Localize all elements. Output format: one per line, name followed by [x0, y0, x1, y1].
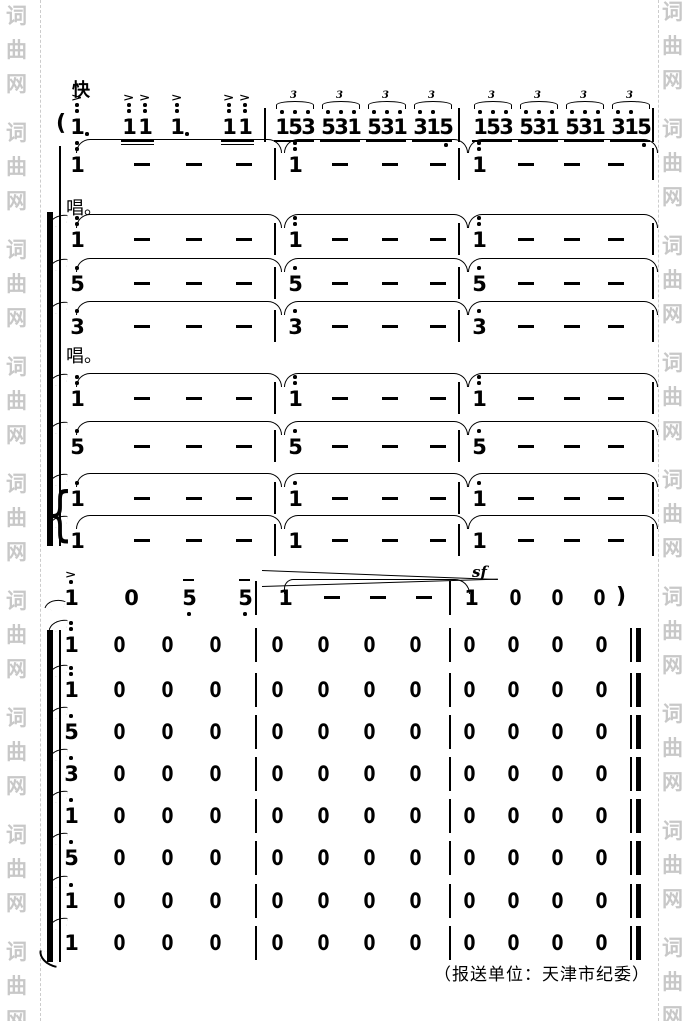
duration-dash: [382, 497, 398, 500]
bar-line: [255, 673, 257, 707]
rest-zero: 0: [113, 634, 125, 656]
duration-dash: [332, 238, 348, 241]
rest-zero: 0: [209, 763, 221, 785]
watermark-char: 网: [6, 659, 27, 680]
duration-dash: [608, 497, 624, 500]
watermark-char: 曲: [662, 621, 683, 642]
final-barline-thick: [636, 757, 641, 791]
rest-zero: 0: [409, 932, 421, 954]
triplet-arc: [566, 101, 604, 109]
duration-dash: [564, 163, 580, 166]
note-digit: 1: [472, 388, 487, 410]
watermark-char: 曲: [662, 504, 683, 525]
watermark-divider-right: [658, 0, 659, 1021]
duration-dash: [332, 282, 348, 285]
note-digit: 5: [288, 436, 303, 458]
bar-line: [449, 673, 451, 707]
watermark-char: 词: [6, 6, 27, 27]
note-digit: 5: [288, 273, 303, 295]
duration-dash: [564, 445, 580, 448]
bar-line: [255, 884, 257, 918]
measure-tie-arc: [76, 258, 282, 272]
note-digit: 1: [288, 530, 303, 552]
bar-line: [449, 715, 451, 749]
duration-dash: [518, 325, 534, 328]
rest-zero: 0: [113, 721, 125, 743]
rest-zero: 0: [161, 634, 173, 656]
rest-zero: 0: [271, 890, 283, 912]
duration-dash: [186, 238, 202, 241]
rest-zero: 0: [209, 805, 221, 827]
duration-dash: [608, 163, 624, 166]
octave-dot: [69, 840, 73, 844]
measure-tie-arc: [76, 473, 282, 487]
score-page: 词曲网词曲网词曲网词曲网词曲网词曲网词曲网词曲网词曲网 词曲网词曲网词曲网词曲网…: [0, 0, 690, 1021]
bar-line: [255, 628, 257, 662]
note-digit: 3: [70, 316, 85, 338]
octave-dot: [385, 110, 389, 114]
rest-zero: 0: [595, 634, 607, 656]
duration-dash: [134, 497, 150, 500]
rest-zero: 0: [113, 847, 125, 869]
rest-zero: 0: [409, 763, 421, 785]
accent-mark: >: [139, 93, 151, 102]
tenuto-mark: [239, 579, 250, 581]
triplet-arc: [322, 101, 360, 109]
rest-zero: 0: [271, 634, 283, 656]
octave-dot: [243, 109, 247, 113]
watermark-char: 网: [6, 191, 27, 212]
watermark-char: 词: [6, 123, 27, 144]
triplet-number: 3: [580, 91, 587, 101]
rest-zero: 0: [113, 679, 125, 701]
rest-zero: 0: [463, 805, 475, 827]
note-digit: 5: [637, 116, 652, 138]
watermark-char: 词: [6, 240, 27, 261]
measure-tie-arc: [76, 421, 282, 435]
note-digit: 3: [64, 763, 79, 785]
duration-dash: [382, 238, 398, 241]
note-digit: 1: [288, 154, 303, 176]
augmentation-dot: [185, 132, 189, 136]
duration-dash: [382, 282, 398, 285]
duration-dash: [430, 282, 446, 285]
watermark-char: 词: [662, 353, 683, 374]
duration-dash: [518, 163, 534, 166]
note-digit: 1: [70, 154, 85, 176]
accent-mark: >: [71, 93, 83, 102]
rest-zero: 0: [409, 847, 421, 869]
duration-dash: [236, 163, 252, 166]
duration-dash: [382, 163, 398, 166]
duration-dash: [608, 238, 624, 241]
octave-dot: [570, 110, 574, 114]
rest-zero: 0: [593, 587, 605, 609]
measure-tie-arc: [76, 515, 282, 529]
rest-zero: 0: [317, 932, 329, 954]
tie-arc: [44, 596, 65, 614]
octave-dot: [293, 110, 297, 114]
octave-dot: [69, 883, 73, 887]
rest-zero: 0: [551, 721, 563, 743]
octave-dot: [524, 110, 528, 114]
rest-zero: 0: [463, 634, 475, 656]
duration-dash: [186, 325, 202, 328]
octave-dot: [69, 798, 73, 802]
watermark-char: 网: [662, 421, 683, 442]
measure-tie-arc: [468, 139, 658, 153]
watermark-char: 曲: [662, 270, 683, 291]
duration-dash: [186, 397, 202, 400]
watermark-char: 网: [662, 1006, 683, 1021]
bar-line: [264, 108, 266, 142]
rest-zero: 0: [595, 890, 607, 912]
rest-zero: 0: [363, 721, 375, 743]
watermark-char: 词: [6, 474, 27, 495]
measure-tie-arc: [468, 373, 658, 387]
measure-tie-arc: [284, 258, 468, 272]
duration-dash: [564, 325, 580, 328]
rest-zero: 0: [271, 847, 283, 869]
final-barline-thick: [636, 715, 641, 749]
duration-dash: [134, 238, 150, 241]
duration-dash: [324, 596, 340, 599]
measure-tie-arc: [468, 301, 658, 315]
watermark-char: 词: [662, 236, 683, 257]
triplet-number: 3: [336, 91, 343, 101]
final-barline-thick: [636, 799, 641, 833]
measure-tie-arc: [76, 301, 282, 315]
rest-zero: 0: [595, 721, 607, 743]
rest-zero: 0: [507, 932, 519, 954]
watermark-char: 曲: [662, 36, 683, 57]
rest-zero: 0: [551, 679, 563, 701]
octave-dot: [187, 612, 191, 616]
octave-dot: [326, 110, 330, 114]
note-digit: 1: [238, 116, 253, 138]
duration-dash: [370, 596, 386, 599]
rest-zero: 0: [595, 679, 607, 701]
rest-zero: 0: [209, 890, 221, 912]
duration-dash: [430, 238, 446, 241]
rest-zero: 0: [363, 634, 375, 656]
note-digit: 1: [591, 116, 606, 138]
rest-zero: 0: [551, 587, 563, 609]
rest-zero: 0: [317, 721, 329, 743]
watermark-char: 词: [662, 821, 683, 842]
watermark-char: 网: [6, 1010, 27, 1021]
note-digit: 1: [347, 116, 362, 138]
rest-zero: 0: [209, 847, 221, 869]
measure-tie-arc: [284, 421, 468, 435]
octave-dot: [616, 110, 620, 114]
watermark-char: 网: [6, 425, 27, 446]
final-barline-thick: [636, 884, 641, 918]
duration-dash: [518, 238, 534, 241]
note-digit: 1: [170, 116, 185, 138]
note-digit: 1: [472, 488, 487, 510]
note-digit: 5: [472, 436, 487, 458]
duration-dash: [518, 497, 534, 500]
octave-dot: [478, 110, 482, 114]
note-digit: 1: [64, 890, 79, 912]
duration-dash: [416, 596, 432, 599]
duration-dash: [608, 445, 624, 448]
system-barline-thin: [59, 630, 61, 962]
rest-zero: 0: [209, 721, 221, 743]
rest-zero: 0: [113, 763, 125, 785]
watermark-char: 网: [662, 70, 683, 91]
note-digit: 1: [64, 932, 79, 954]
accent-mark: >: [223, 93, 235, 102]
watermark-char: 网: [662, 889, 683, 910]
note-digit: 1: [222, 116, 237, 138]
final-barline-thin: [630, 757, 632, 791]
duration-dash: [332, 325, 348, 328]
note-digit: 5: [64, 847, 79, 869]
duration-dash: [134, 397, 150, 400]
rest-zero: 0: [595, 932, 607, 954]
bar-line: [255, 841, 257, 875]
octave-dot: [537, 110, 541, 114]
watermark-char: 曲: [6, 625, 27, 646]
rest-zero: 0: [317, 634, 329, 656]
bar-line: [255, 926, 257, 960]
triplet-number: 3: [534, 91, 541, 101]
rest-zero: 0: [507, 679, 519, 701]
rest-zero: 0: [551, 932, 563, 954]
watermark-char: 曲: [662, 387, 683, 408]
rest-zero: 0: [113, 932, 125, 954]
note-digit: 1: [64, 587, 79, 609]
augmentation-dot: [85, 132, 89, 136]
watermark-char: 曲: [6, 508, 27, 529]
note-digit: 5: [238, 587, 253, 609]
rest-zero: 0: [463, 679, 475, 701]
rest-zero: 0: [209, 932, 221, 954]
note-digit: 5: [472, 273, 487, 295]
note-digit: 3: [288, 316, 303, 338]
octave-dot: [69, 627, 73, 631]
watermark-char: 网: [6, 542, 27, 563]
note-digit: 1: [70, 229, 85, 251]
watermark-char: 网: [6, 308, 27, 329]
rest-zero: 0: [507, 763, 519, 785]
rest-zero: 0: [363, 679, 375, 701]
octave-dot: [491, 110, 495, 114]
duration-dash: [186, 163, 202, 166]
octave-dot: [175, 109, 179, 113]
octave-dot: [306, 110, 310, 114]
rest-zero: 0: [209, 634, 221, 656]
octave-dot: [352, 110, 356, 114]
duration-dash: [332, 497, 348, 500]
duration-dash: [332, 397, 348, 400]
bar-line: [458, 108, 460, 142]
rest-zero: 0: [551, 634, 563, 656]
measure-tie-arc: [284, 515, 468, 529]
octave-dot: [69, 621, 73, 625]
grand-staff-brace: {: [46, 485, 73, 546]
note-digit: 1: [472, 229, 487, 251]
watermark-char: 曲: [662, 738, 683, 759]
measure-tie-arc: [76, 373, 282, 387]
final-barline-thin: [630, 884, 632, 918]
note-digit: 1: [70, 116, 85, 138]
opening-paren: (: [56, 112, 66, 136]
note-digit: 5: [64, 721, 79, 743]
bar-line: [255, 799, 257, 833]
watermark-char: 词: [662, 119, 683, 140]
rest-zero: 0: [463, 932, 475, 954]
watermark-char: 网: [662, 772, 683, 793]
duration-dash: [186, 445, 202, 448]
rest-zero: 0: [161, 763, 173, 785]
watermark-char: 网: [662, 187, 683, 208]
watermark-char: 网: [662, 538, 683, 559]
octave-dot: [69, 756, 73, 760]
duration-dash: [564, 238, 580, 241]
duration-dash: [186, 497, 202, 500]
rest-zero: 0: [161, 679, 173, 701]
rest-zero: 0: [507, 721, 519, 743]
duration-dash: [430, 497, 446, 500]
tenuto-mark: [183, 579, 194, 581]
watermark-char: 网: [6, 893, 27, 914]
triplet-arc: [368, 101, 406, 109]
octave-dot: [398, 110, 402, 114]
duration-dash: [564, 397, 580, 400]
note-digit: 1: [472, 154, 487, 176]
measure-tie-arc: [284, 214, 468, 228]
octave-dot: [339, 110, 343, 114]
duration-dash: [430, 325, 446, 328]
duration-dash: [382, 445, 398, 448]
rest-zero: 0: [317, 847, 329, 869]
triplet-arc: [520, 101, 558, 109]
watermark-char: 曲: [6, 40, 27, 61]
duration-dash: [518, 282, 534, 285]
note-digit: 5: [70, 436, 85, 458]
duration-dash: [518, 397, 534, 400]
final-barline-thin: [630, 799, 632, 833]
duration-dash: [564, 497, 580, 500]
watermark-char: 词: [6, 825, 27, 846]
watermark-char: 词: [6, 708, 27, 729]
note-digit: 1: [64, 805, 79, 827]
rest-zero: 0: [317, 890, 329, 912]
final-barline-thin: [630, 673, 632, 707]
duration-dash: [564, 282, 580, 285]
note-digit: 5: [439, 116, 454, 138]
rest-zero: 0: [363, 805, 375, 827]
watermark-char: 网: [662, 655, 683, 676]
measure-tie-arc: [468, 473, 658, 487]
octave-dot: [127, 109, 131, 113]
rest-zero: 0: [507, 634, 519, 656]
duration-dash: [236, 282, 252, 285]
final-barline-thick: [636, 841, 641, 875]
watermark-char: 网: [6, 776, 27, 797]
measure-tie-arc: [468, 258, 658, 272]
rest-zero: 0: [463, 763, 475, 785]
rest-zero: 0: [161, 932, 173, 954]
rest-zero: 0: [113, 805, 125, 827]
final-barline-thick: [636, 926, 641, 960]
octave-dot: [243, 612, 247, 616]
watermark-char: 曲: [6, 157, 27, 178]
duration-dash: [332, 445, 348, 448]
triplet-number: 3: [488, 91, 495, 101]
note-digit: 5: [182, 587, 197, 609]
duration-dash: [518, 445, 534, 448]
rest-zero: 0: [409, 890, 421, 912]
rest-zero: 0: [409, 805, 421, 827]
rest-zero: 0: [595, 847, 607, 869]
rest-zero: 0: [463, 847, 475, 869]
closing-paren: ): [616, 585, 626, 609]
octave-dot: [69, 672, 73, 676]
watermark-char: 词: [662, 704, 683, 725]
triplet-number: 3: [626, 91, 633, 101]
system-barline-thick: [47, 630, 53, 962]
watermark-char: 曲: [662, 972, 683, 993]
note-digit: 1: [138, 116, 153, 138]
watermark-char: 曲: [6, 859, 27, 880]
note-digit: 1: [288, 229, 303, 251]
accent-mark: >: [123, 93, 135, 102]
note-digit: 3: [499, 116, 514, 138]
rest-zero: 0: [551, 890, 563, 912]
final-barline-thick: [636, 628, 641, 662]
duration-dash: [382, 397, 398, 400]
rest-zero: 0: [507, 847, 519, 869]
rest-zero: 0: [161, 805, 173, 827]
duration-dash: [236, 397, 252, 400]
duration-dash: [236, 238, 252, 241]
rest-zero: 0: [209, 679, 221, 701]
duration-dash: [608, 397, 624, 400]
note-digit: 1: [64, 679, 79, 701]
duration-dash: [134, 445, 150, 448]
duration-dash: [236, 325, 252, 328]
triplet-arc: [474, 101, 512, 109]
measure-tie-arc: [76, 214, 282, 228]
rest-zero: 0: [317, 805, 329, 827]
duration-dash: [134, 539, 150, 542]
vocal-cue-label: 唱。: [66, 194, 102, 220]
watermark-char: 词: [662, 938, 683, 959]
watermark-char: 词: [662, 587, 683, 608]
bar-line: [449, 926, 451, 960]
duration-dash: [430, 397, 446, 400]
credit-line: （报送单位：天津市纪委）: [434, 960, 650, 985]
final-barline-thick: [636, 673, 641, 707]
rest-zero: 0: [551, 763, 563, 785]
bar-line: [255, 581, 257, 615]
rest-zero: 0: [507, 805, 519, 827]
duration-dash: [382, 539, 398, 542]
bar-line: [652, 108, 654, 142]
measure-tie-arc: [468, 421, 658, 435]
note-digit: 1: [472, 530, 487, 552]
triplet-arc: [414, 101, 452, 109]
accent-mark: >: [171, 93, 183, 102]
rest-zero: 0: [507, 890, 519, 912]
duration-dash: [186, 539, 202, 542]
duration-dash: [430, 539, 446, 542]
watermark-divider-left: [40, 0, 41, 1021]
